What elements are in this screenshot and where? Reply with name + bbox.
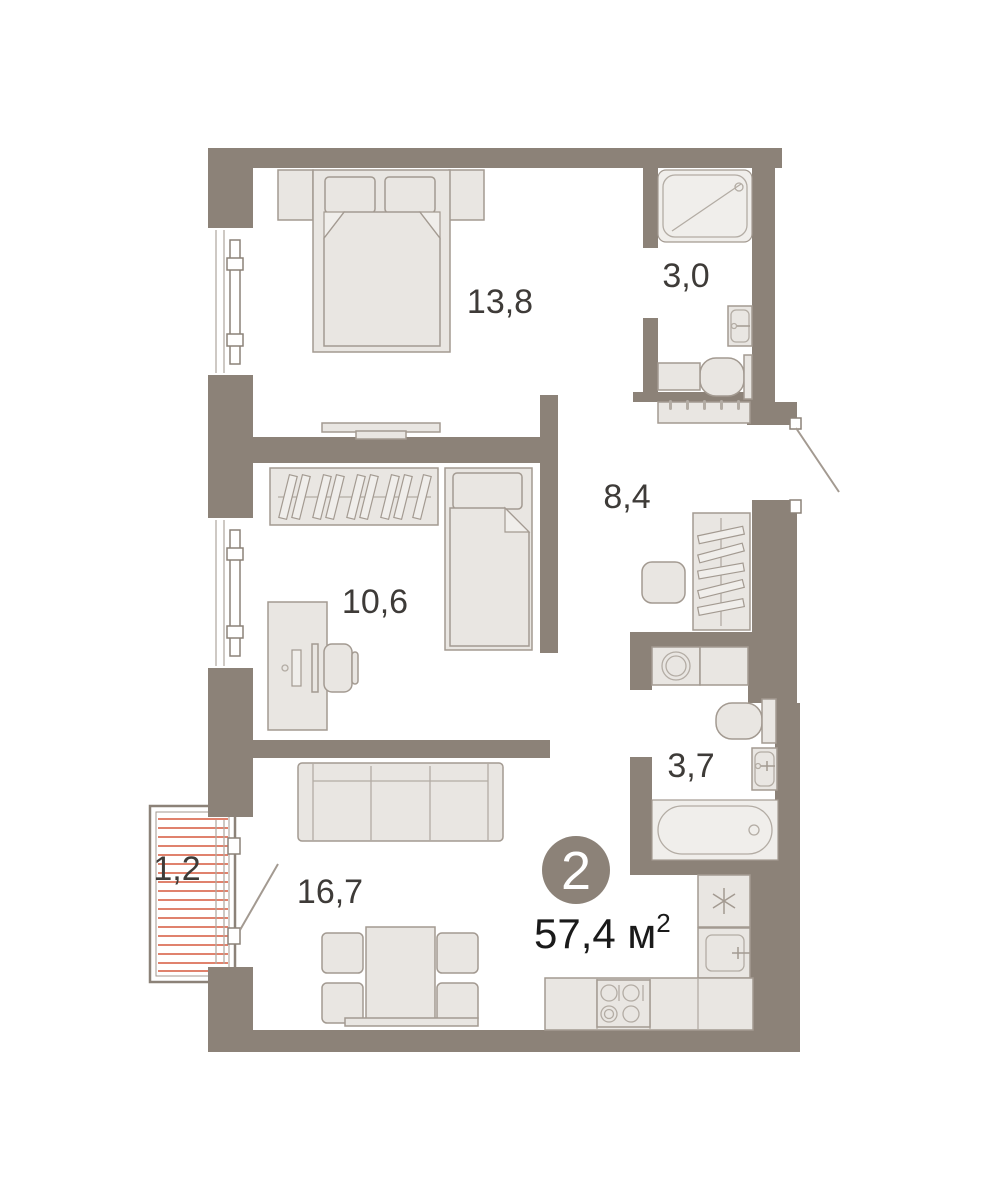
hall-wardrobe [693,513,750,630]
nightstand-right [449,170,484,220]
single-bed [445,468,532,650]
toilet-bathroom [716,699,776,743]
monitor [312,644,318,692]
washing-machine [652,647,700,685]
sofa [298,763,503,841]
sink-bathroom [752,748,777,790]
keyboard [292,650,301,686]
label-bathroom-area: 3,7 [667,747,714,785]
wall-bath-left-a [630,632,652,690]
sink-shower-room [728,306,752,346]
rooms-count-badge: 2 [542,836,610,904]
pillow-left [325,177,375,213]
pouf [642,562,685,603]
toilet-cistern [744,355,752,399]
room-wardrobe [270,468,438,525]
total-area-sup: 2 [656,908,670,938]
wall-bottom [208,1030,800,1052]
wall-bedroom-bottom [253,437,558,463]
single-bed-pillow [453,473,522,509]
label-bedroom-area: 13,8 [467,283,533,321]
entrance-door [790,418,839,513]
badge-number: 2 [561,841,591,901]
nightstand-left [278,170,313,220]
kitchen-counter [545,978,753,1030]
balcony-railing-outer [150,806,235,982]
blanket [324,212,440,346]
desk-chair-seat [324,644,352,692]
coat-rack [658,400,750,423]
window-second-room [216,520,243,666]
entrance-door-jamb [790,500,801,513]
bathtub [652,800,778,860]
wall-shower-left-b [643,318,658,392]
kitchen-sink [698,928,750,978]
bath-counter [700,647,748,685]
tv [356,431,406,439]
desk-chair-back [352,652,358,684]
double-bed [278,170,484,352]
dining-table [366,927,435,1025]
label-balcony-area: 1,2 [153,850,200,888]
pillow-right [385,177,435,213]
wall-shower-left-a [643,168,658,248]
wall-right-mid [752,500,797,647]
chair [322,933,363,973]
window-bedroom [216,230,243,373]
toilet-cistern-2 [762,699,776,743]
dining-set [322,927,478,1026]
wall-bath-top-right [748,647,797,703]
wall-left-3 [208,668,253,817]
entrance-door-hinge [790,418,801,429]
desk-setup [268,602,358,730]
shower-tray [658,170,752,242]
chair [322,983,363,1023]
wall-left-2 [208,375,253,518]
floor-plan-canvas: 13,8 3,0 8,4 10,6 3,7 16,7 1,2 2 57,4 м2 [0,0,990,1200]
tv-console [322,423,440,439]
label-hallway-area: 8,4 [603,478,650,516]
balcony-door-swing [240,864,278,930]
label-living-area: 16,7 [297,873,363,911]
stove [597,980,650,1027]
wall-right-top [752,148,775,402]
wall-bath-right [775,703,800,873]
wall-living-top [253,740,550,758]
balcony-hatch-lines [158,819,228,971]
wall-room2-right [540,463,558,653]
label-shower-area: 3,0 [662,257,709,295]
wall-right-bottom-block [750,873,800,1052]
wall-bedroom-stub [540,395,558,437]
toilet-shower-room [700,355,752,399]
cabinet-shower-room [658,363,700,390]
fridge [698,875,750,927]
wall-left-1 [208,148,253,228]
wall-top [208,148,782,168]
total-area-main: 57,4 м [534,910,656,957]
floor-plan-page: 13,8 3,0 8,4 10,6 3,7 16,7 1,2 2 57,4 м2 [0,0,990,1200]
chair [437,983,478,1023]
table-base [345,1018,478,1026]
chair [437,933,478,973]
balcony [150,806,235,982]
label-second-room-area: 10,6 [342,583,408,621]
wall-bath-top [638,632,797,647]
total-area-text: 57,4 м2 [534,908,671,957]
entrance-door-swing [796,428,839,492]
